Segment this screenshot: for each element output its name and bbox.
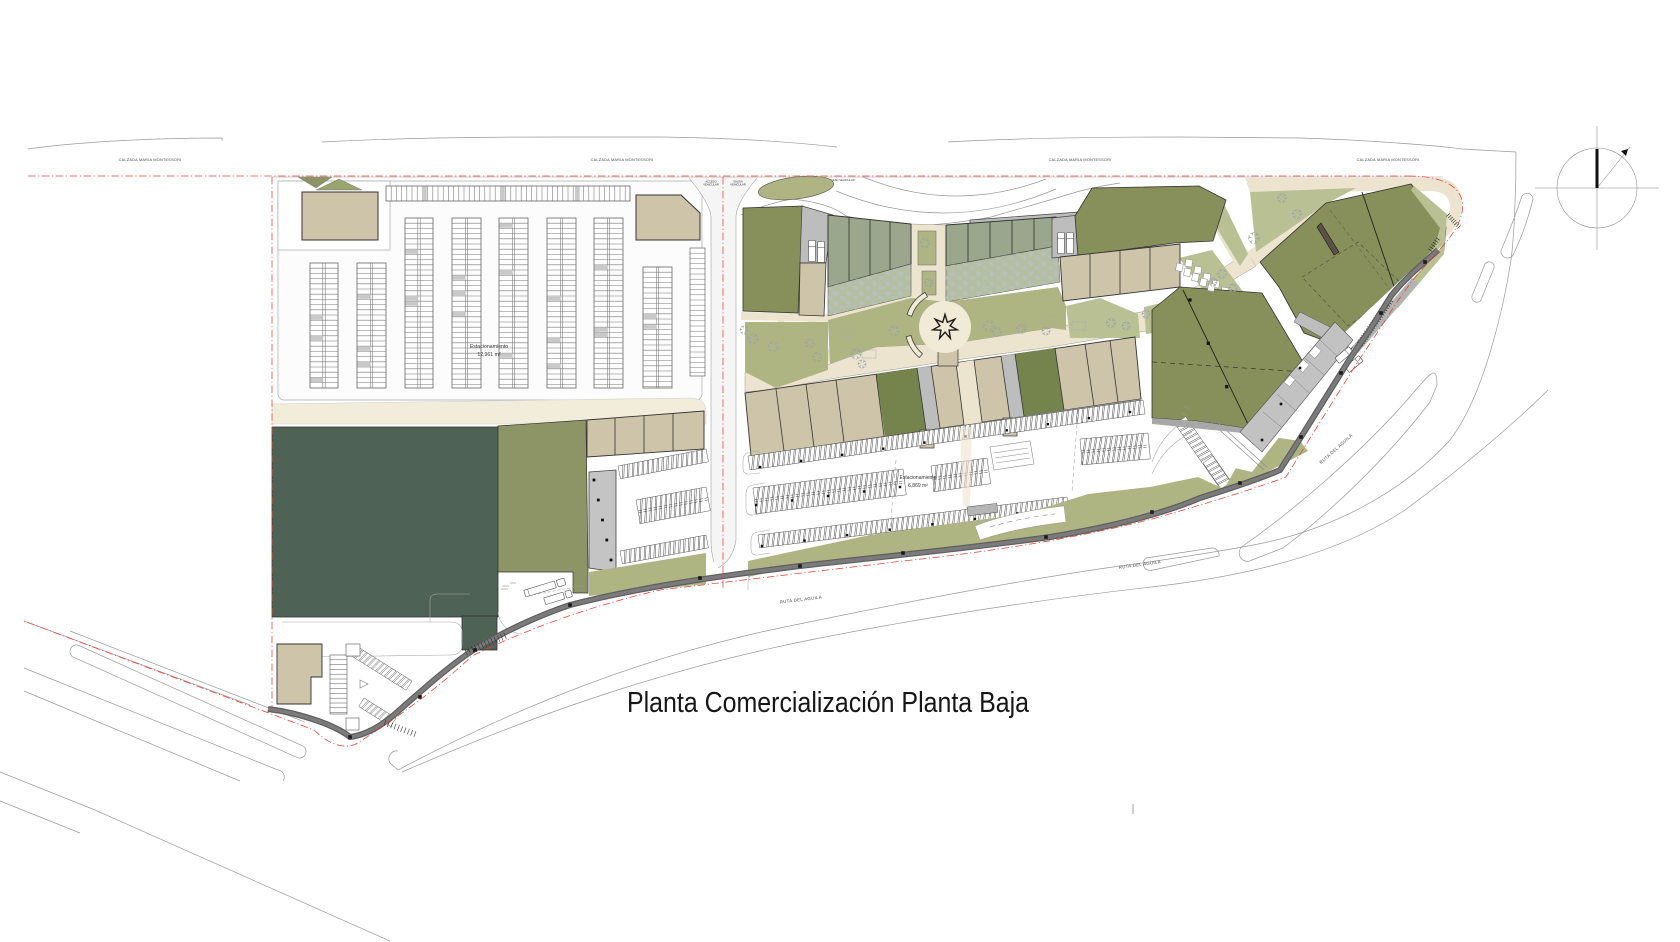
svg-text:12,961 m²: 12,961 m² (477, 352, 501, 358)
svg-text:Estacionamiento: Estacionamiento (470, 344, 508, 350)
svg-text:CALZADA MARIA MONTESSORI: CALZADA MARIA MONTESSORI (1049, 158, 1112, 162)
svg-text:Planta Comercialización Planta: Planta Comercialización Planta Baja (627, 687, 1030, 719)
svg-text:VEHICULAR: VEHICULAR (730, 183, 745, 187)
svg-text:VEHICULAR: VEHICULAR (703, 183, 718, 187)
svg-text:Estacionamiento: Estacionamiento (900, 475, 937, 481)
svg-text:CALZADA MARIA MONTESSORI: CALZADA MARIA MONTESSORI (119, 158, 182, 162)
svg-text:CALZADA MARIA MONTESSORI: CALZADA MARIA MONTESSORI (1357, 158, 1420, 162)
svg-text:6,869 m²: 6,869 m² (908, 483, 928, 489)
svg-text:CALZADA MARIA MONTESSORI: CALZADA MARIA MONTESSORI (591, 158, 654, 162)
